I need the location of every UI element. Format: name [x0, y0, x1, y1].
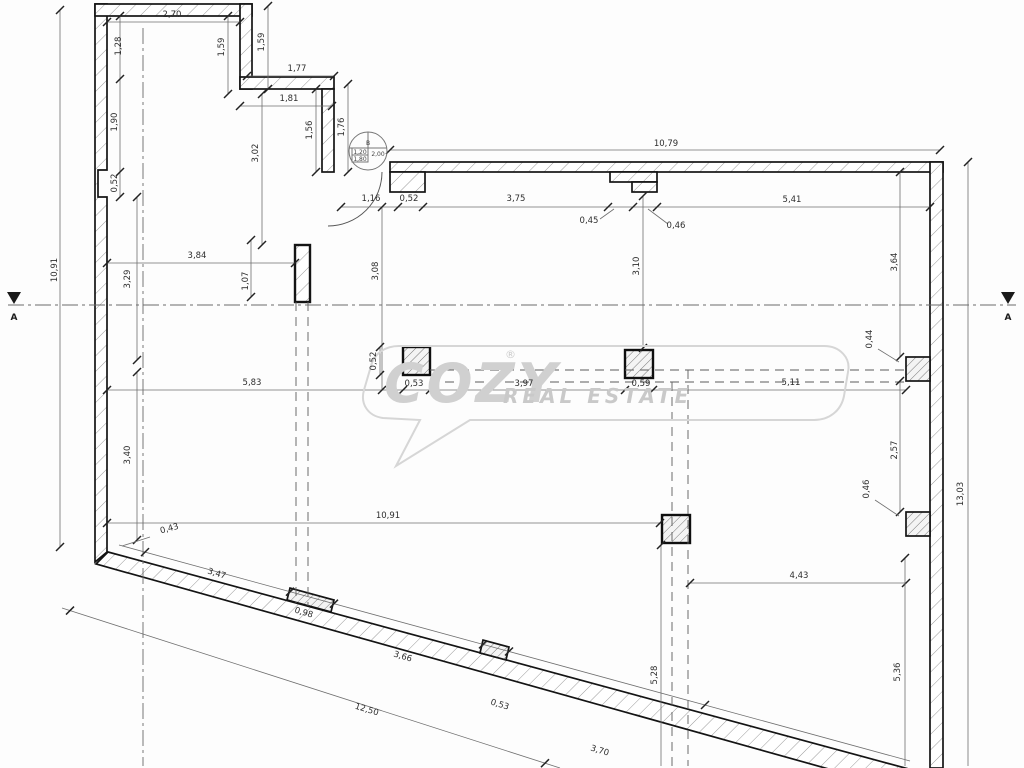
dimension-label: 1,81 — [280, 94, 299, 104]
dimension-label: 12,50 — [353, 702, 379, 719]
dimension-label: 1,16 — [362, 194, 381, 204]
dimension-label: 1,77 — [288, 64, 307, 74]
dimension-label: 5,41 — [783, 195, 802, 205]
dimension-label: 0,53 — [489, 698, 510, 713]
dimension-label: 0,52 — [110, 174, 120, 193]
watermark-registered: ® — [505, 348, 516, 361]
section-marker-right-icon — [1001, 292, 1015, 304]
dimension-label: 1,90 — [110, 113, 120, 132]
dimension-label: 3,08 — [371, 262, 381, 281]
dimension-label: 3,84 — [188, 251, 207, 261]
wall-pier-b — [632, 182, 657, 192]
dimension-label: 1,76 — [337, 118, 347, 137]
wall-top-2 — [240, 77, 334, 89]
wall-top-right-block — [390, 172, 425, 192]
section-marker-right-label: A — [1005, 313, 1012, 323]
wall-stub-interior — [295, 245, 310, 302]
dimension-label: 10,91 — [50, 258, 60, 282]
dimension-label: 5,36 — [893, 663, 903, 682]
dimension-label: 3,10 — [632, 257, 642, 276]
dimension-label: 13,03 — [956, 482, 966, 506]
door-tag-width: 1,20 — [353, 149, 367, 156]
door-tag: B 1,20 1,80 2,00 — [349, 132, 387, 170]
dimension-label: 0,59 — [632, 379, 651, 389]
dimension-label: 5,28 — [650, 666, 660, 685]
dimension-label: 2,70 — [163, 10, 182, 20]
wall-pier-a — [610, 172, 657, 182]
dimension-label: 0,43 — [159, 522, 180, 537]
wall-diagonal — [96, 552, 905, 768]
section-marker-left-label: A — [11, 313, 18, 323]
dimension-label: 5,11 — [782, 378, 801, 388]
dimension-label: 0,46 — [667, 221, 686, 231]
door-tag-code: B — [366, 140, 370, 147]
column-2 — [625, 350, 653, 378]
floor-plan-canvas: COZY ® REAL ESTATE A A B 1,20 1,80 2,00 … — [0, 0, 1024, 768]
section-markers: A A — [7, 292, 1015, 323]
dimension-label: 10,79 — [654, 139, 678, 149]
dimension-label: 3,75 — [507, 194, 526, 204]
column-3 — [662, 515, 690, 543]
dimension-label: 0,46 — [862, 480, 872, 499]
dimension-label: 3,40 — [123, 446, 133, 465]
dimension-label: 3,97 — [515, 379, 534, 389]
door-tag-sill: 2,00 — [371, 151, 385, 158]
door-tag-height: 1,80 — [353, 156, 367, 163]
dimension-label: 10,91 — [376, 511, 400, 521]
wall-left — [95, 4, 107, 562]
dimension-label: 0,53 — [405, 379, 424, 389]
dimension-label: 0,52 — [369, 352, 379, 371]
dimension-label: 5,83 — [243, 378, 262, 388]
dimension-label: 4,43 — [790, 571, 809, 581]
dimension-label: 1,59 — [217, 38, 227, 57]
wall-right — [930, 162, 943, 768]
dimension-label: 1,56 — [305, 121, 315, 140]
dimension-label: 3,29 — [123, 270, 133, 289]
dimension-label: 1,59 — [257, 33, 267, 52]
dimension-label: 3,70 — [589, 744, 610, 759]
pilaster-right-lower — [906, 512, 930, 536]
watermark: COZY ® REAL ESTATE — [363, 346, 849, 466]
dimension-label: 3,64 — [890, 253, 900, 272]
section-marker-left-icon — [7, 292, 21, 304]
wall-door-jamb — [322, 89, 334, 172]
dimension-label: 1,28 — [114, 37, 124, 56]
pilaster-right-upper — [906, 357, 930, 381]
dimension-label: 0,45 — [580, 216, 599, 226]
dimension-label: 3,02 — [251, 144, 261, 163]
dimension-label: 0,44 — [865, 330, 875, 349]
floor-plan-svg: COZY ® REAL ESTATE A A B 1,20 1,80 2,00 … — [0, 0, 1024, 768]
dimension-label: 1,07 — [241, 272, 251, 291]
dimension-label: 2,57 — [890, 441, 900, 460]
wall-top-right-leaf — [390, 162, 943, 172]
dimension-label: 0,52 — [400, 194, 419, 204]
